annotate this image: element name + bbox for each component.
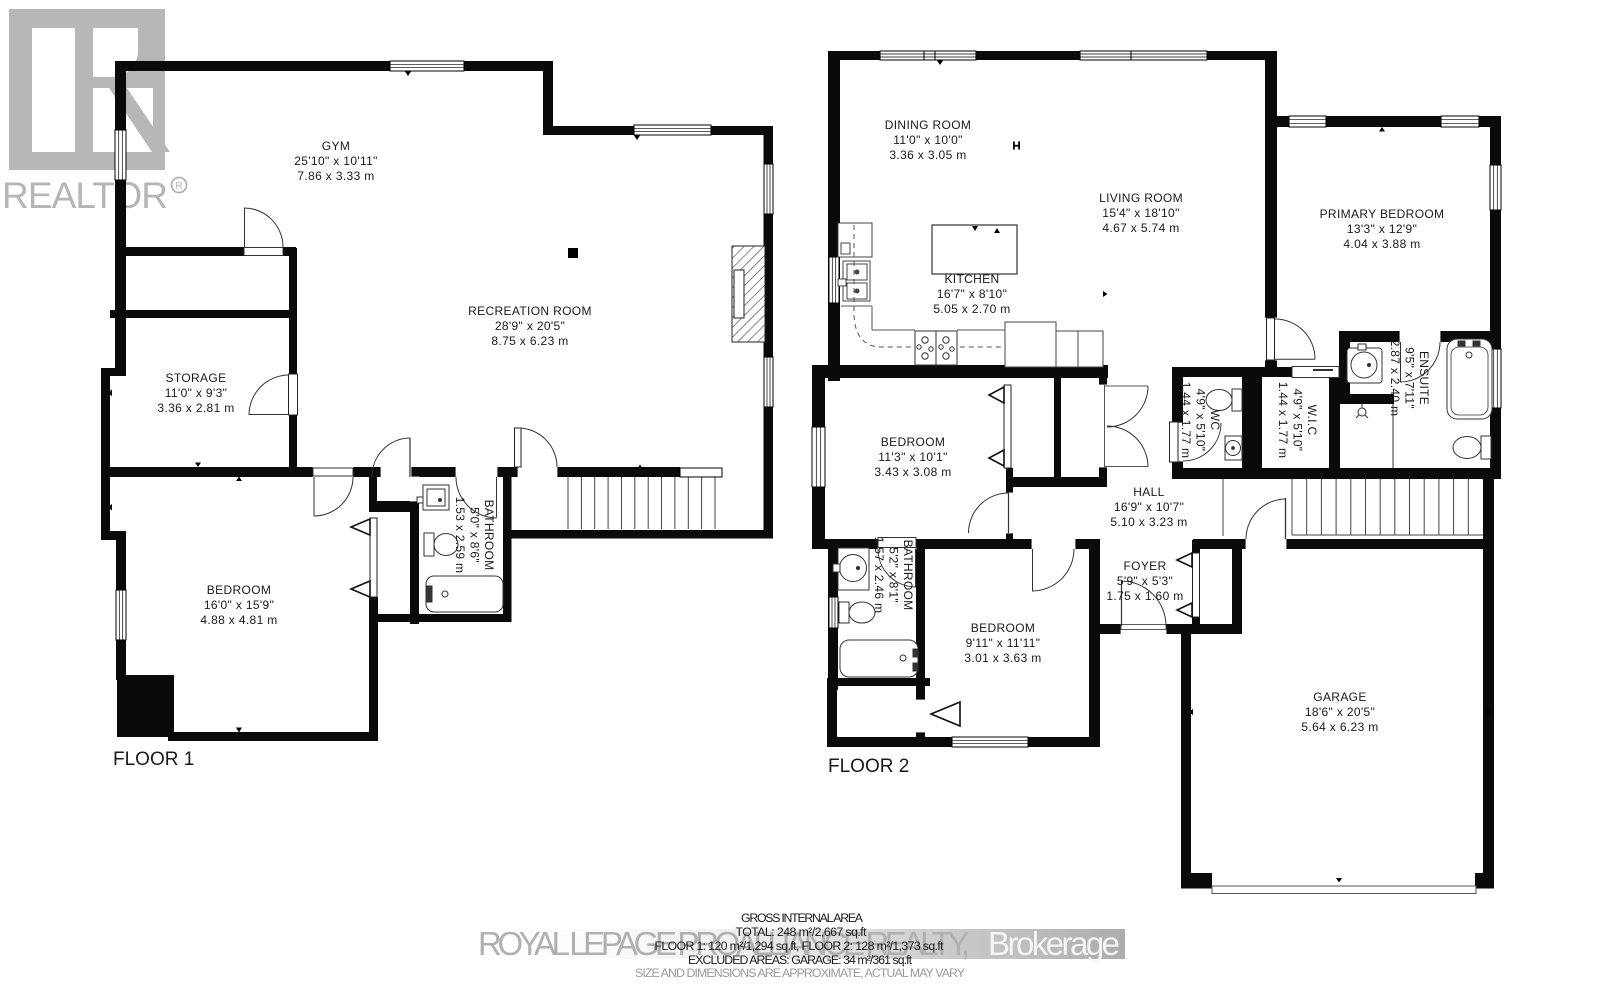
svg-text:KITCHEN: KITCHEN	[944, 272, 999, 286]
svg-text:8.75 x 6.23 m: 8.75 x 6.23 m	[491, 334, 568, 348]
svg-text:13'3" x 12'9": 13'3" x 12'9"	[1347, 222, 1417, 236]
svg-text:W.I.C: W.I.C	[1305, 405, 1319, 436]
svg-text:28'9" x 20'5": 28'9" x 20'5"	[495, 319, 565, 333]
svg-text:7.86 x 3.33 m: 7.86 x 3.33 m	[297, 169, 374, 183]
svg-text:DINING ROOM: DINING ROOM	[885, 118, 972, 132]
svg-text:Brokerage: Brokerage	[988, 925, 1120, 962]
svg-text:BEDROOM: BEDROOM	[971, 621, 1035, 635]
svg-text:9'5" x 7'11": 9'5" x 7'11"	[1403, 347, 1417, 409]
svg-text:EXCLUDED AREAS: GARAGE: 34 m²/: EXCLUDED AREAS: GARAGE: 34 m²/361 sq.ft	[688, 953, 913, 967]
svg-text:BATHROOM: BATHROOM	[482, 500, 496, 571]
svg-text:SIZE AND DIMENSIONS ARE APPROX: SIZE AND DIMENSIONS ARE APPROXIMATE, ACT…	[635, 966, 965, 980]
svg-text:FLOOR 2: FLOOR 2	[828, 756, 909, 777]
svg-text:16'0" x 15'9": 16'0" x 15'9"	[204, 598, 274, 612]
svg-text:16'9" x 10'7": 16'9" x 10'7"	[1114, 500, 1184, 514]
svg-text:HALL: HALL	[1133, 485, 1164, 499]
svg-text:LIVING ROOM: LIVING ROOM	[1099, 191, 1183, 205]
svg-text:3.01 x 3.63 m: 3.01 x 3.63 m	[964, 651, 1041, 665]
svg-text:5'0" x 8'6": 5'0" x 8'6"	[468, 507, 482, 563]
svg-text:4'9" x 5'10": 4'9" x 5'10"	[1291, 389, 1305, 452]
svg-text:WC: WC	[1208, 410, 1222, 431]
svg-text:5'9" x 5'3": 5'9" x 5'3"	[1117, 574, 1173, 588]
svg-text:5.05 x 2.70 m: 5.05 x 2.70 m	[933, 302, 1010, 316]
svg-text:4.67 x 5.74 m: 4.67 x 5.74 m	[1102, 221, 1179, 235]
svg-text:1.44 x 1.77 m: 1.44 x 1.77 m	[1276, 382, 1290, 459]
svg-text:9'11" x 11'11": 9'11" x 11'11"	[966, 636, 1041, 650]
svg-text:R: R	[175, 181, 182, 192]
svg-text:4'9" x 5'10": 4'9" x 5'10"	[1194, 389, 1208, 452]
svg-text:STORAGE: STORAGE	[166, 371, 227, 385]
svg-text:PRIMARY BEDROOM: PRIMARY BEDROOM	[1320, 207, 1445, 221]
svg-text:15'4" x 18'10": 15'4" x 18'10"	[1102, 206, 1179, 220]
svg-text:5'2" x 8'1": 5'2" x 8'1"	[887, 547, 901, 603]
svg-text:5.10 x 3.23 m: 5.10 x 3.23 m	[1110, 515, 1187, 529]
svg-text:BEDROOM: BEDROOM	[881, 435, 945, 449]
svg-text:4.04 x 3.88 m: 4.04 x 3.88 m	[1343, 237, 1420, 251]
svg-text:1.53 x 2.59 m: 1.53 x 2.59 m	[453, 497, 467, 574]
svg-text:GARAGE: GARAGE	[1313, 690, 1366, 704]
svg-text:1.44 x 1.77 m: 1.44 x 1.77 m	[1179, 382, 1193, 459]
svg-text:RECREATION ROOM: RECREATION ROOM	[468, 304, 592, 318]
svg-text:GYM: GYM	[322, 139, 350, 153]
svg-text:1.75 x 1.60 m: 1.75 x 1.60 m	[1106, 589, 1183, 603]
svg-text:1.57 x 2.46 m: 1.57 x 2.46 m	[872, 537, 886, 614]
svg-text:5.64 x 6.23 m: 5.64 x 6.23 m	[1301, 720, 1378, 734]
svg-text:REALTOR: REALTOR	[2, 175, 168, 216]
svg-text:BATHROOM: BATHROOM	[901, 540, 915, 611]
svg-text:3.36 x 3.05 m: 3.36 x 3.05 m	[889, 148, 966, 162]
svg-text:11'0" x 9'3": 11'0" x 9'3"	[165, 386, 227, 400]
svg-text:3.36 x 2.81 m: 3.36 x 2.81 m	[157, 401, 234, 415]
svg-text:FLOOR 1: 120 m²/1,294 sq.ft, F: FLOOR 1: 120 m²/1,294 sq.ft, FLOOR 2: 12…	[655, 939, 945, 953]
svg-text:TOTAL: 248 m²/2,667 sq.ft: TOTAL: 248 m²/2,667 sq.ft	[736, 925, 868, 939]
svg-text:18'6" x 20'5": 18'6" x 20'5"	[1305, 705, 1375, 719]
svg-text:4.88 x 4.81 m: 4.88 x 4.81 m	[200, 613, 277, 627]
svg-text:FOYER: FOYER	[1123, 559, 1166, 573]
svg-text:ENSUITE: ENSUITE	[1417, 351, 1431, 405]
svg-text:BEDROOM: BEDROOM	[207, 583, 271, 597]
svg-text:16'7" x 8'10": 16'7" x 8'10"	[937, 287, 1007, 301]
svg-text:GROSS INTERNAL AREA: GROSS INTERNAL AREA	[741, 911, 864, 925]
svg-text:3.43 x 3.08 m: 3.43 x 3.08 m	[874, 465, 951, 479]
svg-text:11'0" x 10'0": 11'0" x 10'0"	[893, 133, 962, 147]
svg-text:11'3" x 10'1": 11'3" x 10'1"	[878, 450, 947, 464]
svg-text:2.87 x 2.40 m: 2.87 x 2.40 m	[1388, 340, 1402, 417]
svg-text:25'10" x 10'11": 25'10" x 10'11"	[294, 154, 378, 168]
svg-text:FLOOR 1: FLOOR 1	[113, 749, 194, 770]
